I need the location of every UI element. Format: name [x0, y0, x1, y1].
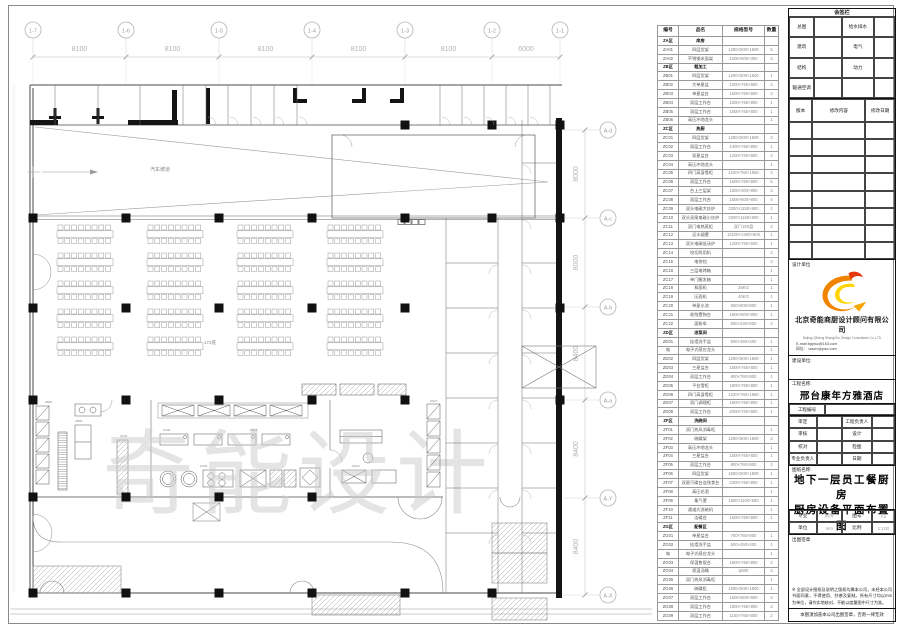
schedule-cell: 4	[765, 594, 779, 603]
company-name-cn: 北京奇能商厨设计顾问有限公司	[792, 315, 892, 335]
schedule-row: ZC15电饼铛2	[658, 258, 779, 267]
schedule-cell	[723, 63, 765, 72]
schedule-cell: 2000×760×800	[723, 408, 765, 417]
schedule-cell: 1	[765, 293, 779, 302]
schedule-cell: ZB05	[658, 107, 679, 116]
schedule-cell: 1600×760×800	[723, 178, 765, 187]
schedule-cell	[723, 426, 765, 435]
schedule-cell: ZF05	[658, 461, 679, 470]
schedule-cell: ZB03	[658, 90, 679, 99]
schedule-cell: 1	[765, 505, 779, 514]
schedule-cell: 1800×800×800	[723, 311, 765, 320]
revision-empty-cell	[865, 208, 895, 225]
schedule-cell: ZD04	[658, 373, 679, 382]
schedule-cell: 2	[765, 320, 779, 329]
schedule-cell: 2	[765, 249, 779, 258]
sign-bar-cell	[814, 58, 842, 78]
schedule-cell: ZC11	[658, 222, 679, 231]
schedule-row: ZB02大单星盆1000×760×8004	[658, 81, 779, 90]
schedule-cell: 2200×1150×800	[723, 205, 765, 214]
schedule-row: ZD04双层工作台900×760×8001	[658, 373, 779, 382]
schedule-cell	[723, 549, 765, 558]
schedule-row: ZD08双层工作台2000×760×8001	[658, 408, 779, 417]
schedule-cell: 1200×500×1800	[723, 434, 765, 443]
schedule-row: ZC区热厨	[658, 125, 779, 134]
schedule-cell: 1200×500×1800	[723, 585, 765, 594]
equipment-tag: ZC05	[120, 434, 128, 438]
structural-column	[215, 493, 224, 502]
structural-column	[401, 121, 410, 130]
schedule-cell: ZA区	[658, 37, 679, 46]
sign-bar-cell: 动力	[842, 58, 874, 78]
schedule-cell: 挂墙洗手盆	[679, 337, 723, 346]
schedule-cell: ZF03	[658, 443, 679, 452]
ramp-label: 汽车坡道	[150, 166, 170, 173]
revision-empty-cell	[789, 156, 812, 173]
schedule-row: ZF04三星盆台1800×760×8001	[658, 452, 779, 461]
approval-grid: 审定工程负责人审核设计校对检图专业负责人日期	[789, 416, 895, 466]
schedule-cell: 电子式感应龙头	[679, 346, 723, 355]
sign-bar-cell	[842, 78, 874, 98]
schedule-cell: ZB01	[658, 72, 679, 81]
equipment-tag: ZC06	[163, 428, 171, 432]
revision-empty-cell	[865, 191, 895, 208]
car-ramp: 汽车坡道	[28, 127, 548, 215]
schedule-cell: 1	[765, 72, 779, 81]
schedule-cell: 1000×760×800	[723, 81, 765, 90]
approval-cell	[817, 453, 842, 465]
equipment-schedule-table: 编号品名规格型号数量ZA区库房ZA01四层货架1200×500×16005ZA0…	[657, 25, 779, 621]
schedule-cell	[723, 346, 765, 355]
schedule-cell: ZC17	[658, 275, 679, 284]
schedule-cell: 双层工作台	[679, 107, 723, 116]
revision-empty-cell	[812, 225, 865, 242]
schedule-cell: ZF01	[658, 426, 679, 435]
revision-empty-cell	[789, 122, 812, 139]
schedule-cell: ZG03	[658, 558, 679, 567]
schedule-cell: ZC21	[658, 311, 679, 320]
approval-cell: 审定	[789, 416, 817, 428]
schedule-cell: 双门热风消毒柜	[679, 426, 723, 435]
schedule-cell: ZB06	[658, 116, 679, 125]
meta-grid: 专业 厨房 图号 A1 单位 mm 比例 1:100	[789, 510, 895, 535]
logo-head	[849, 272, 864, 280]
schedule-cell: 配餐区	[679, 523, 723, 532]
schedule-cell: 600×600×800	[723, 302, 765, 311]
revision-empty-cell	[865, 156, 895, 173]
grid-bubble-label: 1-1	[556, 28, 564, 34]
schedule-cell: 和面机	[679, 284, 723, 293]
schedule-cell: 单门醒发箱	[679, 275, 723, 284]
schedule-cell: 双层工作台	[679, 98, 723, 107]
sign-bar-cell: 总图	[789, 17, 814, 37]
schedule-cell: 1800×760×800	[723, 558, 765, 567]
schedule-cell: 1200×760×800	[723, 151, 765, 160]
structural-column	[215, 396, 224, 405]
sign-bar: 会签栏 总图给水排水建筑电气结构动力暖通空调	[789, 9, 895, 99]
unit-value: mm	[817, 522, 842, 534]
schedule-cell: 3	[765, 187, 779, 196]
approval-cell	[817, 428, 842, 440]
schedule-row: ZF06四层货架1500×500×18001	[658, 470, 779, 479]
schedule-cell: 1	[765, 364, 779, 373]
schedule-cell: 2	[765, 461, 779, 470]
revision-empty-cell	[865, 122, 895, 139]
revision-empty-cell	[789, 191, 812, 208]
equipment-tag: ZC09	[200, 464, 208, 468]
schedule-cell: 不锈钢米面架	[679, 54, 723, 63]
schedule-cell: ZC02	[658, 143, 679, 152]
schedule-row: ZG07双层工作台1500×800×8004	[658, 594, 779, 603]
schedule-cell: 500×450×400	[723, 541, 765, 550]
schedule-cell	[723, 417, 765, 426]
seal-label: 出图签章	[792, 537, 892, 543]
structural-column	[401, 589, 410, 598]
schedule-row: ZB05双层工作台1800×760×8001	[658, 107, 779, 116]
dimension-label: 8100	[72, 46, 88, 53]
schedule-cell: 1200×500×1600	[723, 72, 765, 81]
schedule-cell: 1200×500×1600	[723, 134, 765, 143]
revision-empty-cell	[812, 173, 865, 190]
structural-column	[401, 304, 410, 313]
schedule-cell: ZA01	[658, 45, 679, 54]
schedule-cell: ZD区	[658, 328, 679, 337]
schedule-cell: 粗加工	[679, 63, 723, 72]
structural-column	[122, 214, 131, 223]
revision-empty-cell	[865, 225, 895, 242]
major-value: 厨房	[817, 510, 842, 522]
schedule-cell: ZF区	[658, 417, 679, 426]
schedule-header-cell: 规格型号	[723, 26, 765, 37]
revision-header-cell: 修改日期	[865, 99, 895, 122]
schedule-row: 电电子式感应龙头1	[658, 549, 779, 558]
schedule-cell: 三星盆台	[679, 364, 723, 373]
schedule-cell: 碗碟架	[679, 434, 723, 443]
schedule-row: ZG03保温售饭台1800×760×8002	[658, 558, 779, 567]
schedule-row: ZF01双门热风消毒柜1	[658, 426, 779, 435]
schedule-cell: 1	[765, 488, 779, 497]
schedule-cell: 4	[765, 54, 779, 63]
schedule-cell: 双星盆台	[679, 151, 723, 160]
sign-bar-title: 会签栏	[789, 9, 895, 17]
schedule-cell: 1500×760×800	[723, 98, 765, 107]
grid-bubble-label: A-b	[604, 305, 613, 311]
sign-bar-cell	[874, 78, 895, 98]
schedule-row: ZF08高压花洒1	[658, 488, 779, 497]
schedule-cell: 四层货架	[679, 470, 723, 479]
schedule-row: ZD06四门高身雪柜1220×760×19501	[658, 390, 779, 399]
schedule-row: ZC21收残置物台1800×800×8001	[658, 311, 779, 320]
schedule-cell: 4	[765, 196, 779, 205]
schedule-cell: ZC10	[658, 213, 679, 222]
equipment-tag: ZG07	[430, 399, 438, 403]
schedule-cell: 单星水池	[679, 302, 723, 311]
schedule-cell: 1	[765, 107, 779, 116]
schedule-cell: 2	[765, 434, 779, 443]
structural-column	[215, 304, 224, 313]
schedule-cell: 1	[765, 355, 779, 364]
schedule-row: ZF11洁碟台1500×760×8001	[658, 514, 779, 523]
schedule-row: ZG06碗碟柜1200×500×18001	[658, 585, 779, 594]
structural-column	[29, 589, 38, 598]
schedule-row: ZC03双星盆台1200×760×8002	[658, 151, 779, 160]
dimension-label: 8000	[573, 255, 580, 271]
schedule-cell: 1	[765, 98, 779, 107]
schedule-cell: 压面机	[679, 293, 723, 302]
grid-bubble-label: A-c	[604, 216, 613, 222]
schedule-cell: 电子式感应龙头	[679, 549, 723, 558]
schedule-row: ZB04双层工作台1500×760×8001	[658, 98, 779, 107]
schedule-cell: ZB04	[658, 98, 679, 107]
revision-empty-cell	[812, 242, 865, 259]
project-number-row: 工程编号	[789, 404, 895, 416]
design-unit-label: 设计单位	[792, 262, 892, 268]
structural-column	[215, 214, 224, 223]
schedule-cell: ZC03	[658, 151, 679, 160]
schedule-cell	[723, 160, 765, 169]
revision-empty-cell	[789, 139, 812, 156]
company-website: 网址： www.bjqnsc.com	[792, 347, 892, 352]
sign-bar-cell: 给水排水	[842, 17, 874, 37]
dining-seats-label: 172座	[204, 339, 217, 346]
approval-cell: 校对	[789, 441, 817, 453]
schedule-cell: 1	[765, 213, 779, 222]
seal-box: 出图签章 ※ 全部设计图纸及说明之版权均属本公司，未经本公司书面同意，不得使用、…	[789, 535, 895, 609]
schedule-row: 电电子式感应龙头1	[658, 346, 779, 355]
schedule-cell: 1500×800×800	[723, 594, 765, 603]
structural-column	[215, 589, 224, 598]
schedule-row: ZB03单星盆台1500×760×8002	[658, 90, 779, 99]
schedule-row: ZD01挂墙洗手盆500×450×4001	[658, 337, 779, 346]
structural-column	[308, 493, 317, 502]
schedule-cell: 1600×300×900	[723, 187, 765, 196]
schedule-cell: 四层货架	[679, 134, 723, 143]
schedule-cell: 电	[658, 549, 679, 558]
sign-bar-cell	[814, 78, 842, 98]
copyright-note: ※ 全部设计图纸及说明之版权均属本公司，未经本公司书面同意，不得使用、抄袭及复制…	[792, 587, 892, 606]
schedule-cell: ZB02	[658, 81, 679, 90]
schedule-cell: 1150×760×800	[723, 611, 765, 620]
grid-bubble-label: A-d	[604, 128, 613, 134]
schedule-cell: 2	[765, 151, 779, 160]
build-unit-box: 建设单位:	[789, 356, 895, 380]
revision-empty-cell	[812, 139, 865, 156]
schedule-cell: ZF04	[658, 452, 679, 461]
dimension-label: 6000	[518, 46, 534, 53]
schedule-row: ZD02四层货架1200×500×16001	[658, 355, 779, 364]
schedule-cell: ZC09	[658, 205, 679, 214]
approval-cell	[872, 441, 895, 453]
design-unit-box: 设计单位 北京奇能商厨设计顾问有限公司 Beijing QiNeng Shang…	[789, 260, 895, 356]
schedule-cell: 凉菜间	[679, 328, 723, 337]
sign-bar-cell	[874, 17, 895, 37]
schedule-cell: ZC13	[658, 240, 679, 249]
schedule-row: ZA区库房	[658, 37, 779, 46]
schedule-cell: ZC14	[658, 249, 679, 258]
schedule-cell: 500×430×600	[723, 320, 765, 329]
footer-note: 本图须加盖本公司出图签章，否则一律无效	[789, 609, 895, 621]
schedule-row: ZC06双层工作台1600×760×8006	[658, 178, 779, 187]
schedule-row: ZG04保温汤桶φ5004	[658, 567, 779, 576]
revision-empty-cell	[812, 122, 865, 139]
schedule-cell: ZD06	[658, 390, 679, 399]
schedule-cell: 平台雪柜	[679, 381, 723, 390]
major-label: 专业	[789, 510, 817, 522]
schedule-row: ZD03三星盆台1800×760×8001	[658, 364, 779, 373]
schedule-cell: 1	[765, 143, 779, 152]
schedule-cell: 1	[765, 240, 779, 249]
schedule-cell: 1	[765, 381, 779, 390]
structural-column	[308, 304, 317, 313]
schedule-header-row: 编号品名规格型号数量	[658, 26, 779, 37]
schedule-cell: ZD08	[658, 408, 679, 417]
company-email: E-mail:bjqnsc@163.com	[792, 342, 892, 346]
grid-bubble-label: A-Y	[603, 496, 613, 502]
title-block: 会签栏 总图给水排水建筑电气结构动力暖通空调 版本修改内容修改日期 设计单位 北…	[788, 8, 896, 622]
drawing-sheet: 1-71-61-51-41-31-21-18100810081008100810…	[0, 0, 900, 629]
schedule-cell: 三星盆台	[679, 452, 723, 461]
schedule-row: ZC18和面机25KG1	[658, 284, 779, 293]
schedule-cell: 1	[765, 311, 779, 320]
schedule-cell: 6	[765, 178, 779, 187]
schedule-cell: ZD02	[658, 355, 679, 364]
schedule-cell: 台上三层架	[679, 187, 723, 196]
structural-column	[29, 214, 38, 223]
revision-empty-cell	[812, 208, 865, 225]
schedule-row: ZC02双层工作台1400×760×8001	[658, 143, 779, 152]
structural-column	[122, 304, 131, 313]
schedule-cell: 1	[765, 231, 779, 240]
schedule-row: ZC10双头双尾电磁小炒炉2200×1150×8001	[658, 213, 779, 222]
schedule-cell: 2200×1150×800	[723, 213, 765, 222]
schedule-row: ZC22面粉车500×430×6002	[658, 320, 779, 329]
schedule-cell: 1	[765, 275, 779, 284]
schedule-cell: 2	[765, 603, 779, 612]
equipment-tag: ZB03	[75, 419, 83, 423]
schedule-cell: ZC18	[658, 284, 679, 293]
schedule-cell: ZD03	[658, 364, 679, 373]
sign-bar-cell	[874, 37, 895, 57]
schedule-cell: 4	[765, 169, 779, 178]
approval-cell: 日期	[842, 453, 872, 465]
schedule-cell: 5	[765, 45, 779, 54]
schedule-cell: 1800×760×800	[723, 452, 765, 461]
unit-label: 单位	[789, 522, 817, 534]
approval-cell	[872, 428, 895, 440]
schedule-row: ZC13双头电磁低汤炉1200×750×6001	[658, 240, 779, 249]
revision-empty-cell	[812, 156, 865, 173]
schedule-cell: 双星污碟台连残食台	[679, 479, 723, 488]
revision-empty-cell	[789, 173, 812, 190]
schedule-cell: 1	[765, 160, 779, 169]
schedule-row: ZC05四门高身雪柜1220×760×19504	[658, 169, 779, 178]
figure-no-label: 图号	[842, 510, 872, 522]
schedule-cell: 集气罩	[679, 496, 723, 505]
schedule-cell	[765, 328, 779, 337]
heavy-wall-segments	[30, 88, 404, 125]
schedule-row: ZF03高压冲地龙头1	[658, 443, 779, 452]
schedule-cell: 高压冲地龙头	[679, 443, 723, 452]
schedule-cell: 1	[765, 205, 779, 214]
floor-plan: 1-71-61-51-41-31-21-18100810081008100810…	[0, 0, 660, 629]
schedule-row: ZF05双层工作台900×760×8002	[658, 461, 779, 470]
schedule-cell	[723, 249, 765, 258]
schedule-cell: 热厨	[679, 125, 723, 134]
schedule-cell	[723, 275, 765, 284]
project-box: 工程名称: 邢台康年方雅酒店	[789, 380, 895, 404]
schedule-cell: 双门热风消毒柜	[679, 576, 723, 585]
schedule-cell: ZG05	[658, 576, 679, 585]
drawing-title-line1: 地下一层员工餐厨房	[792, 473, 892, 503]
schedule-cell: 绞切两用机	[679, 249, 723, 258]
revision-empty-cell	[789, 225, 812, 242]
schedule-cell: 2	[765, 558, 779, 567]
schedule-cell: 1500×760×800	[723, 514, 765, 523]
sign-bar-cell	[814, 37, 842, 57]
schedule-cell: ZG06	[658, 585, 679, 594]
drawing-title-box: 图纸名称: 地下一层员工餐厨房 厨房设备平面布置图	[789, 466, 895, 510]
revision-table: 版本修改内容修改日期	[789, 99, 895, 260]
schedule-row: ZC20单星水池600×600×8001	[658, 302, 779, 311]
schedule-cell: 1220×760×1950	[723, 390, 765, 399]
scale-value: 1:100	[872, 522, 895, 534]
revision-empty-cell	[865, 139, 895, 156]
watermark-text: 奇能设计	[102, 424, 494, 526]
schedule-cell: 电	[658, 346, 679, 355]
schedule-header-cell: 数量	[765, 26, 779, 37]
schedule-cell: 4	[765, 567, 779, 576]
schedule-cell: ZC区	[658, 125, 679, 134]
schedule-cell: 双门调理柜	[679, 399, 723, 408]
schedule-cell: 双层工作台	[679, 178, 723, 187]
schedule-cell: 40KG	[723, 293, 765, 302]
schedule-cell: 1	[765, 452, 779, 461]
schedule-cell: 双层工作台	[679, 196, 723, 205]
grid-bubble-label: 1-5	[215, 28, 223, 34]
structural-column	[308, 214, 317, 223]
schedule-cell: ZF09	[658, 496, 679, 505]
schedule-cell: 1800×760×800	[723, 381, 765, 390]
approval-cell: 专业负责人	[789, 453, 817, 465]
schedule-cell: 库房	[679, 37, 723, 46]
structural-column	[29, 396, 38, 405]
schedule-cell: 洗碗间	[679, 417, 723, 426]
approval-cell	[817, 441, 842, 453]
schedule-cell: 1	[765, 576, 779, 585]
schedule-cell	[723, 488, 765, 497]
revision-empty-cell	[865, 242, 895, 259]
schedule-cell: 双门电热蒸柜	[679, 222, 723, 231]
grid-bubble-label: 1-4	[308, 28, 316, 34]
dimension-label: 8100	[351, 46, 367, 53]
revision-header-cell: 修改内容	[812, 99, 865, 122]
schedule-cell: 1200×500×1600	[723, 45, 765, 54]
schedule-cell: 1	[765, 470, 779, 479]
schedule-row: ZF区洗碗间	[658, 417, 779, 426]
schedule-cell: 500×450×400	[723, 337, 765, 346]
schedule-cell: 900×760×800	[723, 373, 765, 382]
sign-bar-cell: 电气	[842, 37, 874, 57]
schedule-cell: 1800×760×800	[723, 364, 765, 373]
schedule-cell: 双层工作台	[679, 603, 723, 612]
schedule-cell: 1200×600×300	[723, 54, 765, 63]
schedule-cell: ZC12	[658, 231, 679, 240]
schedule-row: ZF10通道式洗碗机1	[658, 505, 779, 514]
schedule-cell: ZG区	[658, 523, 679, 532]
project-name: 邢台康年方雅酒店	[792, 388, 892, 402]
revision-empty-cell	[812, 191, 865, 208]
schedule-cell: 1	[765, 337, 779, 346]
